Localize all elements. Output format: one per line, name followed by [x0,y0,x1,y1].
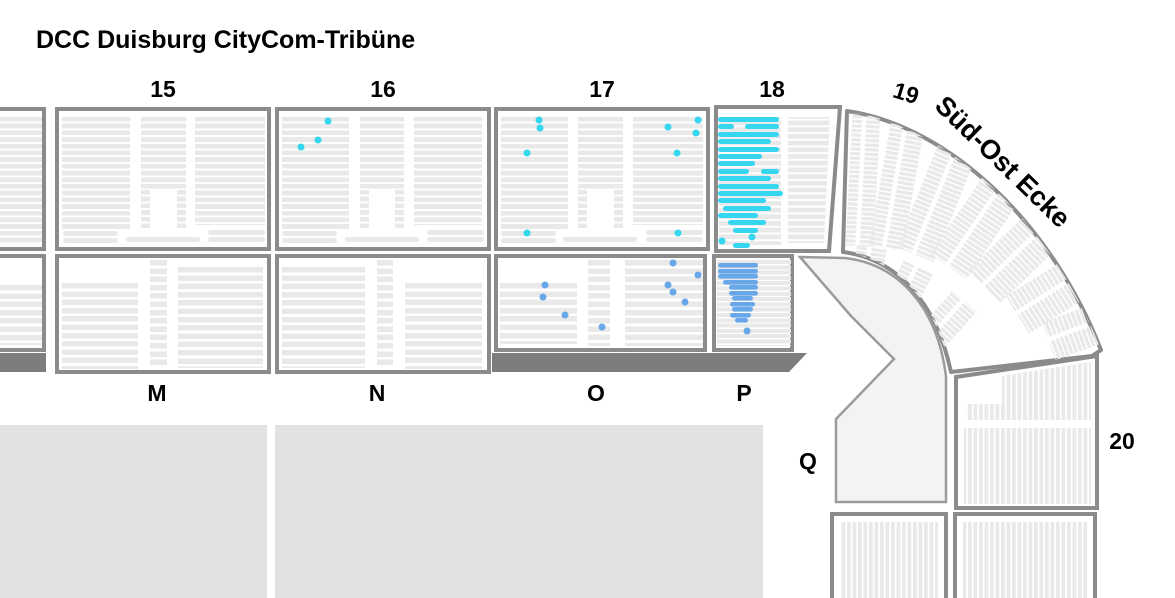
seat-row-selected[interactable] [718,269,758,274]
seat-row-available[interactable] [718,124,734,129]
seat-available[interactable] [693,130,700,137]
seat-row-selected[interactable] [723,280,758,285]
seat-selected[interactable] [665,282,672,289]
seat-selected[interactable] [695,272,702,279]
seat-row-available[interactable] [733,243,750,248]
seat-row-available[interactable] [718,161,755,166]
seat-row-available[interactable] [728,220,766,225]
seat-row-selected[interactable] [718,274,758,279]
seat-row-available[interactable] [733,228,758,233]
seat-row-selected[interactable] [732,296,753,301]
seat-selected[interactable] [540,294,547,301]
seat-available[interactable] [749,234,756,241]
seat-row-available[interactable] [718,154,762,159]
seat-row-available[interactable] [718,132,779,137]
seat-available[interactable] [315,137,322,144]
seat-rows [840,522,938,598]
seat-row-selected[interactable] [718,263,758,268]
seat-available[interactable] [695,117,702,124]
section-16-label: 16 [353,76,413,103]
seat-row-available[interactable] [761,169,779,174]
seat-selected[interactable] [599,324,606,331]
map-title: DCC Duisburg CityCom-Tribüne [36,26,415,55]
seat-selected[interactable] [670,260,677,267]
seat-row-available[interactable] [718,139,771,144]
row-O-label: O [566,380,626,407]
seat-rows [788,117,830,243]
section-18-label: 18 [742,76,802,103]
seat-row-selected[interactable] [729,285,758,290]
seat-row-available[interactable] [723,206,771,211]
seat-selected[interactable] [670,289,677,296]
section-20-label: 20 [1092,428,1152,455]
seat-row-available[interactable] [718,184,779,189]
seat-row-selected[interactable] [735,318,748,323]
seat-row-available[interactable] [718,198,766,203]
seat-available[interactable] [298,144,305,151]
section-15-label: 15 [133,76,193,103]
seat-row-available[interactable] [745,124,779,129]
seat-selected[interactable] [562,312,569,319]
walkway-strip-right [492,353,807,372]
seat-row-selected[interactable] [732,307,753,312]
seat-available[interactable] [719,238,726,245]
seat-row-available[interactable] [718,169,749,174]
seat-available[interactable] [675,230,682,237]
seat-row-available[interactable] [718,147,779,152]
seat-selected[interactable] [542,282,549,289]
row-M-label: M [127,380,187,407]
seatmap-canvas: DCC Duisburg CityCom-Tribüne 15 16 17 18… [0,0,1175,598]
row-P-label: P [714,380,774,407]
seat-rows [963,522,1087,598]
seat-available[interactable] [524,150,531,157]
seat-row-selected[interactable] [729,291,758,296]
seat-row-available[interactable] [718,191,783,196]
seat-row-selected[interactable] [730,313,751,318]
seat-available[interactable] [537,125,544,132]
row-Q-label: Q [778,448,838,475]
seat-selected[interactable] [682,299,689,306]
seat-available[interactable] [536,117,543,124]
seat-available[interactable] [665,124,672,131]
seat-row-available[interactable] [718,213,758,218]
section-17-label: 17 [572,76,632,103]
row-N-label: N [347,380,407,407]
seat-selected[interactable] [744,328,751,335]
highlighted-seats [298,117,784,335]
seat-row-selected[interactable] [730,302,755,307]
seat-available[interactable] [674,150,681,157]
seat-available[interactable] [325,118,332,125]
seat-row-available[interactable] [718,117,779,122]
seat-available[interactable] [524,230,531,237]
seat-row-available[interactable] [718,176,771,181]
